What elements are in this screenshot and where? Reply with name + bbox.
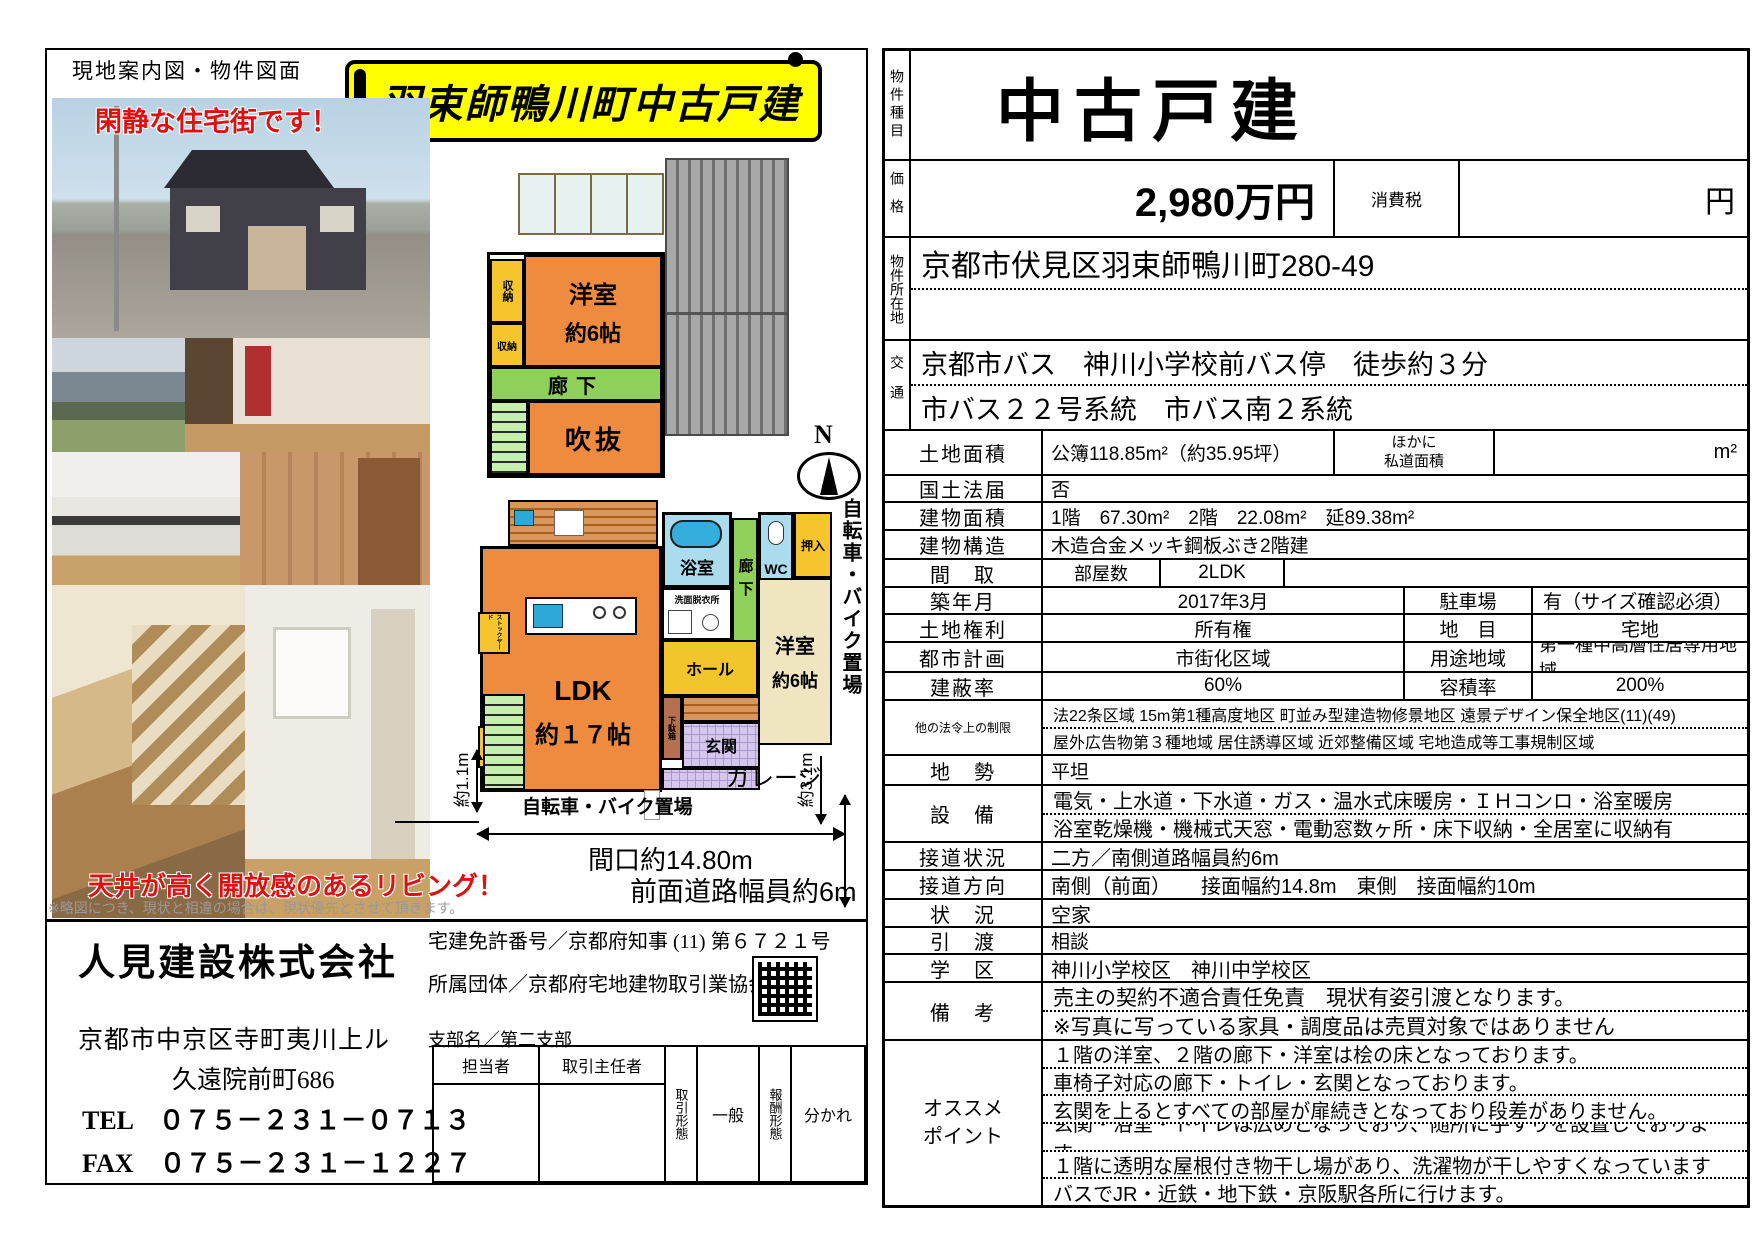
location-value: 京都市伏見区羽束師鴨川町280-49 — [911, 238, 1747, 290]
yoto-label: 用途地域 — [1405, 643, 1533, 671]
dim-3-1m-arrow — [814, 756, 828, 824]
recommend-label-line2: ポイント — [923, 1123, 1003, 1151]
photo-exterior-window2 — [320, 206, 354, 232]
row-property-type: 物件種目 中古戸建 — [885, 51, 1747, 161]
row-kenpei: 建蔽率 60% 容積率 200% — [885, 673, 1747, 701]
row-recommend-points: オススメ ポイント １階の洋室、２階の廊下・洋室は桧の床となっております。 車椅… — [885, 1041, 1747, 1205]
photo-bedroom-window — [273, 627, 351, 719]
row-built: 築年月 2017年3月 駐車場 有（サイズ確認必須） — [885, 588, 1747, 615]
yoto-value: 第一種中高層住居専用地域 — [1533, 643, 1747, 671]
plan-2f-corridor: 廊下 — [490, 367, 662, 401]
utilities-cell: 電気・上水道・下水道・ガス・温水式床暖房・ＩＨコンロ・浴室暖房 浴室乾燥機・機械… — [1043, 786, 1747, 841]
recommend-cell: １階の洋室、２階の廊下・洋室は桧の床となっております。 車椅子対応の廊下・トイレ… — [1043, 1041, 1747, 1205]
plan-1f-entrance-step — [682, 696, 760, 722]
flyer-canvas: 現地案内図・物件図面 羽束師鴨川町中古戸建 閑静な住宅街です！ 天井が高く開放感… — [0, 0, 1755, 1241]
row-madori: 間 取 部屋数 2LDK — [885, 560, 1747, 588]
row-road-direction: 接道方向 南側（前面） 接面幅約14.8m 東側 接面幅約10m — [885, 871, 1747, 900]
building-area-value: 1階 67.30m² 2階 22.08m² 延89.38m² — [1043, 503, 1747, 529]
madori-label: 間 取 — [885, 560, 1043, 586]
yoseki-value: 200% — [1533, 673, 1747, 699]
plan-roof-seam — [667, 312, 787, 315]
row-legal-limits: 他の法令上の制限 法22条区域 15m第1種高度地区 町並み型建造物修景地区 遠… — [885, 701, 1747, 756]
road-direction-value: 南側（前面） 接面幅約14.8m 東側 接面幅約10m — [1043, 871, 1747, 898]
location-blank — [911, 290, 1747, 339]
agent-staff-blank — [434, 1085, 538, 1181]
photo-kitchen — [52, 452, 240, 585]
plan-1f-washer-icon — [668, 610, 692, 634]
photo-room-curtain-red — [245, 346, 271, 416]
plan-1f-stove-burner2 — [613, 606, 626, 619]
row-structure: 建物構造 木造合金メッキ鋼板ぶき2階建 — [885, 531, 1747, 560]
dim-1-1m-arrow-down — [471, 802, 483, 813]
row-location: 物件所在地 京都市伏見区羽束師鴨川町280-49 — [885, 238, 1747, 341]
remarks-label: 備 考 — [885, 983, 1043, 1039]
city-plan-label: 都市計画 — [885, 643, 1043, 671]
land-area-value: 公簿118.85m²（約35.95坪） — [1043, 431, 1335, 474]
land-rights-label: 土地権利 — [885, 615, 1043, 641]
road-status-value: 二方／南側道路幅員約6m — [1043, 843, 1747, 869]
photo-stairwell-steps — [132, 625, 245, 805]
row-remarks: 備 考 売主の契約不適合責任免責 現状有姿引渡となります。 ※写真に写っている家… — [885, 983, 1747, 1041]
row-transport: 交通 京都市バス 神川小学校前バス停 徒歩約３分 市バス２２号系統 市バス南２系… — [885, 341, 1747, 431]
frontage-arrow-left — [476, 827, 489, 841]
plan-1f-stove-burner1 — [593, 606, 606, 619]
location-cell: 京都市伏見区羽束師鴨川町280-49 — [911, 238, 1747, 339]
front-road-label: 前面道路幅員約6m — [630, 870, 857, 909]
row-building-area: 建物面積 1階 67.30m² 2階 22.08m² 延89.38m² — [885, 503, 1747, 531]
dim-1-1m-arrow — [470, 750, 484, 812]
recommend-point-5: １階に透明な屋根付き物干し場があり、洗濯物が干しやすくなっています — [1043, 1152, 1747, 1180]
remarks-line2: ※写真に写っている家具・調度品は売買対象ではありません — [1043, 1012, 1747, 1039]
leader-line — [395, 821, 479, 823]
transport-line2: 市バス２２号系統 市バス南２系統 — [911, 386, 1747, 429]
private-road-label-line2: 私道面積 — [1384, 453, 1444, 472]
plan-2f-balcony — [518, 173, 664, 235]
agent-chief-blank — [540, 1085, 664, 1181]
left-page-title: 現地案内図・物件図面 — [72, 55, 302, 85]
road-width-arrow-up — [839, 794, 851, 805]
chimoku-label: 地 目 — [1405, 615, 1533, 641]
location-label: 物件所在地 — [885, 238, 911, 339]
road-direction-label: 接道方向 — [885, 871, 1043, 898]
row-utilities: 設 備 電気・上水道・下水道・ガス・温水式床暖房・ＩＨコンロ・浴室暖房 浴室乾燥… — [885, 786, 1747, 843]
land-rights-value: 所有権 — [1043, 615, 1405, 641]
city-plan-value: 市街化区域 — [1043, 643, 1405, 671]
plan-1f-bedroom-size: 約6帖 — [772, 667, 818, 693]
left-section-divider — [45, 919, 868, 922]
plan-1f-wc-label: WC — [761, 561, 791, 577]
plan-2f-void: 吹抜 — [528, 401, 662, 475]
banner-text: 羽束師鴨川町中古戸建 — [367, 72, 801, 130]
handover-value: 相談 — [1043, 928, 1747, 953]
row-road-status: 接道状況 二方／南側道路幅員約6m — [885, 843, 1747, 871]
plan-1f-deck-sink — [514, 510, 534, 526]
bike-area-side-label: 自転車・バイク置場 — [836, 498, 865, 748]
recommend-point-1: １階の洋室、２階の廊下・洋室は桧の床となっております。 — [1043, 1041, 1747, 1069]
transport-line1: 京都市バス 神川小学校前バス停 徒歩約３分 — [911, 341, 1747, 386]
plan-1f-stockyard: ストックヤード — [478, 612, 510, 654]
built-label: 築年月 — [885, 588, 1043, 613]
bike-area-bottom-label: 自転車・バイク置場 — [522, 792, 693, 819]
status-value: 空家 — [1043, 900, 1747, 926]
row-handover: 引 渡 相談 — [885, 928, 1747, 955]
company-fax: FAX ０７５－２３１－１２２７ — [82, 1143, 472, 1180]
private-road-label: ほかに 私道面積 — [1335, 431, 1495, 474]
remarks-line1: 売主の契約不適合責任免責 現状有姿引渡となります。 — [1043, 983, 1747, 1012]
recommend-point-4: 玄関・浴室・トイレは広めとなっており、随所に手すりを設置しております。 — [1043, 1124, 1747, 1152]
plan-2f-bedroom: 洋室 約6帖 — [524, 255, 662, 367]
plan-1f-hall: ホール — [662, 640, 758, 696]
row-status: 状 況 空家 — [885, 900, 1747, 928]
chimoku-value: 宅地 — [1533, 615, 1747, 641]
agent-fee-type-header: 報酬形態 — [760, 1047, 792, 1181]
agent-staff-header: 担当者 — [434, 1047, 538, 1085]
association: 所属団体／京都府宅地建物取引業協会 — [428, 968, 768, 997]
agent-deal-type-value: 一般 — [698, 1047, 760, 1181]
qr-code-pattern — [758, 962, 812, 1016]
price-value: 2,980万円 — [911, 161, 1335, 236]
plan-1f-kitchen-sink — [533, 604, 563, 628]
spec-table: 物件種目 中古戸建 価格 2,980万円 消費税 円 物件所在地 京都市伏見区羽… — [882, 48, 1750, 1208]
photo-exterior-door — [248, 226, 306, 290]
plan-1f-bath-label: 浴室 — [665, 554, 729, 579]
dim-1-1m-arrow-up — [471, 749, 483, 760]
compass-needle — [820, 457, 838, 495]
recommend-point-3: 玄関を上るとすべての部屋が扉続きとなっており段差がありません。 — [1043, 1096, 1747, 1124]
frontage-arrow-line — [477, 833, 845, 835]
building-area-label: 建物面積 — [885, 503, 1043, 529]
tax-yen-unit: 円 — [1460, 161, 1747, 236]
utilities-line1: 電気・上水道・下水道・ガス・温水式床暖房・ＩＨコンロ・浴室暖房 — [1043, 786, 1747, 815]
remarks-cell: 売主の契約不適合責任免責 現状有姿引渡となります。 ※写真に写っている家具・調度… — [1043, 983, 1747, 1039]
recommend-point-6: バスでJR・近鉄・地下鉄・京阪駅各所に行けます。 — [1043, 1179, 1747, 1205]
utilities-label: 設 備 — [885, 786, 1043, 841]
qr-code — [752, 956, 818, 1022]
company-address2: 久遠院前町686 — [172, 1060, 335, 1096]
plan-1f-toilet-icon — [768, 521, 784, 545]
company-name: 人見建設株式会社 — [78, 932, 398, 986]
tax-label: 消費税 — [1335, 161, 1460, 236]
plan-1f-washroom: 洗面脱衣所 — [662, 588, 732, 640]
plan-2f-closet2: 収納 — [490, 323, 524, 367]
compass-n-label: N — [814, 420, 833, 450]
private-road-label-line1: ほかに — [1391, 434, 1436, 453]
caption-quiet-street: 閑静な住宅街です！ — [95, 100, 338, 139]
plan-1f-bathtub — [670, 520, 722, 548]
plan-1f-kitchen — [525, 597, 637, 635]
recommend-label: オススメ ポイント — [885, 1041, 1043, 1205]
structure-value: 木造合金メッキ鋼板ぶき2階建 — [1043, 531, 1747, 558]
agent-col-staff: 担当者 — [434, 1047, 540, 1181]
plan-2f-stairs — [490, 401, 528, 475]
company-address1: 京都市中京区寺町夷川上ル — [78, 1020, 390, 1056]
row-land-rights: 土地権利 所有権 地 目 宅地 — [885, 615, 1747, 643]
plan-1f-basin-icon — [702, 614, 719, 631]
photo-room-curtain-floor — [185, 424, 430, 452]
row-school-district: 学 区 神川小学校区 神川中学校区 — [885, 955, 1747, 983]
legal-limits-label: 他の法令上の制限 — [885, 701, 1043, 754]
banner-pin-icon — [788, 52, 803, 67]
handover-label: 引 渡 — [885, 928, 1043, 953]
legal-limits-line1: 法22条区域 15m第1種高度地区 町並み型建造物修景地区 遠景デザイン保全地区… — [1043, 701, 1747, 729]
photo-room-curtain — [185, 338, 430, 452]
dim-3-1m-arrow-down — [815, 814, 827, 825]
plan-1f-wc: WC — [758, 512, 794, 586]
yoseki-label: 容積率 — [1405, 673, 1533, 699]
property-type-value: 中古戸建 — [911, 51, 1747, 159]
dim-1-1m-label: 約1.1m — [448, 740, 468, 820]
property-type-label: 物件種目 — [885, 51, 911, 159]
terrain-value: 平坦 — [1043, 756, 1747, 784]
kokudo-label: 国土法届 — [885, 476, 1043, 501]
agent-table: 担当者 取引主任者 取引形態 一般 報酬形態 分かれ — [432, 1045, 866, 1183]
agent-col-chief: 取引主任者 — [540, 1047, 666, 1181]
plan-1f-deck-fixture — [554, 510, 584, 536]
kokudo-value: 否 — [1043, 476, 1747, 501]
kenpei-value: 60% — [1043, 673, 1405, 699]
photo-hallway-door — [240, 452, 430, 585]
plan-1f-deck — [508, 500, 658, 546]
agent-fee-type-value: 分かれ — [792, 1047, 864, 1181]
private-road-unit: m² — [1495, 431, 1747, 474]
price-label: 価格 — [885, 161, 911, 236]
plan-1f-ldk-label: LDK — [554, 675, 612, 707]
plan-2f-bedroom-size: 約6帖 — [565, 316, 621, 348]
plan-1f-ldk-size: 約１７帖 — [535, 715, 631, 750]
row-kokudo: 国土法届 否 — [885, 476, 1747, 503]
dim-3-1m-label: 約3.1m — [792, 738, 812, 822]
photo-exterior-roof — [164, 150, 334, 188]
plan-disclaimer: ※略図につき、現状と相違の場合は、現状優先とさせて頂きます。 — [48, 898, 463, 918]
road-status-label: 接道状況 — [885, 843, 1043, 869]
rooms-value: 2LDK — [1161, 560, 1285, 586]
recommend-point-2: 車椅子対応の廊下・トイレ・玄関となっております。 — [1043, 1069, 1747, 1097]
license-number: 宅建免許番号／京都府知事 (11) 第６７２１号 — [428, 925, 831, 954]
status-label: 状 況 — [885, 900, 1043, 926]
school-district-value: 神川小学校区 神川中学校区 — [1043, 955, 1747, 981]
row-price: 価格 2,980万円 消費税 円 — [885, 161, 1747, 238]
plan-2f-box: 収納 収納 洋室 約6帖 廊下 吹抜 — [487, 252, 665, 478]
legal-limits-line2: 屋外広告物第３種地域 居住誘導区域 近郊整備区域 宅地造成等工事規制区域 — [1043, 729, 1747, 755]
plan-1f-washroom-label: 洗面脱衣所 — [664, 593, 730, 606]
compass-icon — [797, 452, 861, 500]
photo-roof-view — [52, 338, 185, 452]
school-district-label: 学 区 — [885, 955, 1043, 981]
row-land-area: 土地面積 公簿118.85m²（約35.95坪） ほかに 私道面積 m² — [885, 431, 1747, 476]
row-city-plan: 都市計画 市街化区域 用途地域 第一種中高層住居専用地域 — [885, 643, 1747, 673]
madori-blank — [1285, 560, 1747, 586]
row-terrain: 地 勢 平坦 — [885, 756, 1747, 786]
photo-exterior-window — [186, 206, 220, 232]
kenpei-label: 建蔽率 — [885, 673, 1043, 699]
transport-cell: 京都市バス 神川小学校前バス停 徒歩約３分 市バス２２号系統 市バス南２系統 — [911, 341, 1747, 429]
plan-1f-oshiire: 押入 — [794, 512, 832, 578]
parking-label: 駐車場 — [1405, 588, 1533, 613]
plan-roof-hatch — [665, 158, 789, 436]
recommend-label-line1: オススメ — [923, 1095, 1003, 1123]
utilities-line2: 浴室乾燥機・機械式天窓・電動窓数ヶ所・床下収納・全居室に収納有 — [1043, 815, 1747, 842]
plan-1f-bedroom: 洋室 約6帖 — [758, 578, 832, 745]
plan-1f-corridor: 廊下 — [732, 518, 758, 644]
agent-deal-type-header: 取引形態 — [666, 1047, 698, 1181]
parking-value: 有（サイズ確認必須） — [1533, 588, 1747, 613]
legal-limits-cell: 法22条区域 15m第1種高度地区 町並み型建造物修景地区 遠景デザイン保全地区… — [1043, 701, 1747, 754]
land-area-label: 土地面積 — [885, 431, 1043, 474]
photo-hallway-door-panel — [358, 458, 420, 585]
structure-label: 建物構造 — [885, 531, 1043, 558]
plan-1f-bath: 浴室 — [662, 512, 732, 588]
plan-2f-closet1: 収納 — [490, 259, 524, 323]
plan-1f-shoebox: 下駄箱 — [662, 696, 682, 760]
built-value: 2017年3月 — [1043, 588, 1405, 613]
plan-1f-bedroom-label: 洋室 — [775, 630, 815, 659]
agent-chief-header: 取引主任者 — [540, 1047, 664, 1085]
rooms-label: 部屋数 — [1043, 560, 1161, 586]
transport-label: 交通 — [885, 341, 911, 429]
plan-2f-bedroom-label: 洋室 — [569, 275, 617, 310]
plan-1f-ldk-label-group: LDK 約１７帖 — [513, 667, 653, 757]
company-tel: TEL ０７５－２３１－０７１３ — [82, 1100, 471, 1137]
photo-exterior-pole — [114, 106, 119, 331]
terrain-label: 地 勢 — [885, 756, 1043, 784]
plan-1f-stairs — [483, 694, 525, 790]
